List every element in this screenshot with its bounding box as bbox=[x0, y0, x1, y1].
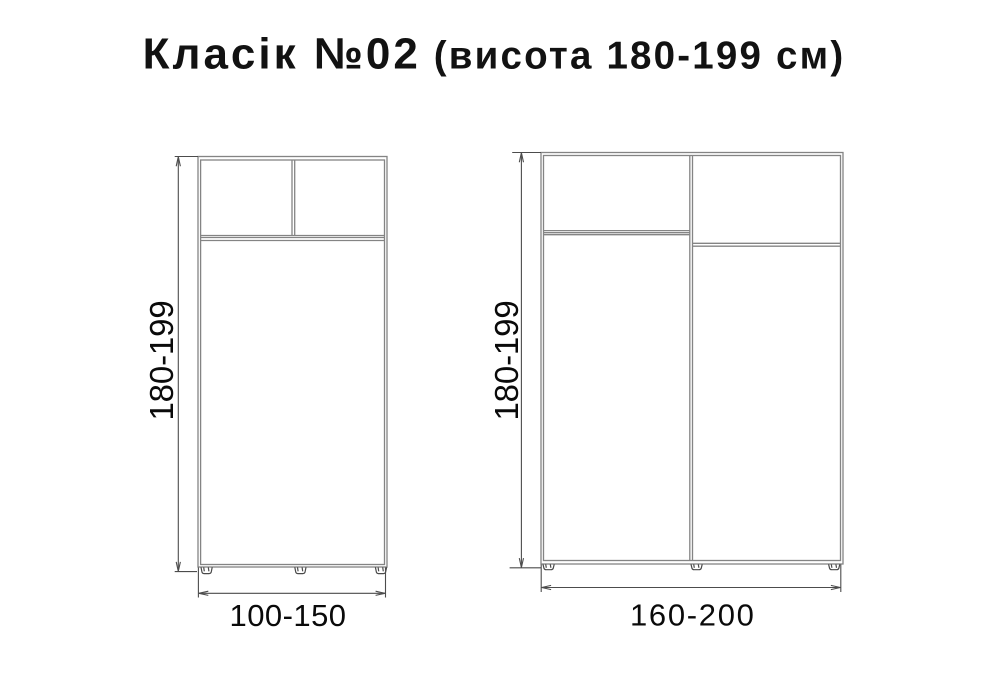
svg-text:Класік №02 (висота 180-199 см): Класік №02 (висота 180-199 см) bbox=[143, 29, 846, 78]
svg-text:180-199: 180-199 bbox=[488, 300, 525, 420]
svg-text:100-150: 100-150 bbox=[230, 598, 347, 633]
svg-text:160-200: 160-200 bbox=[630, 598, 756, 633]
svg-text:180-199: 180-199 bbox=[143, 300, 180, 420]
